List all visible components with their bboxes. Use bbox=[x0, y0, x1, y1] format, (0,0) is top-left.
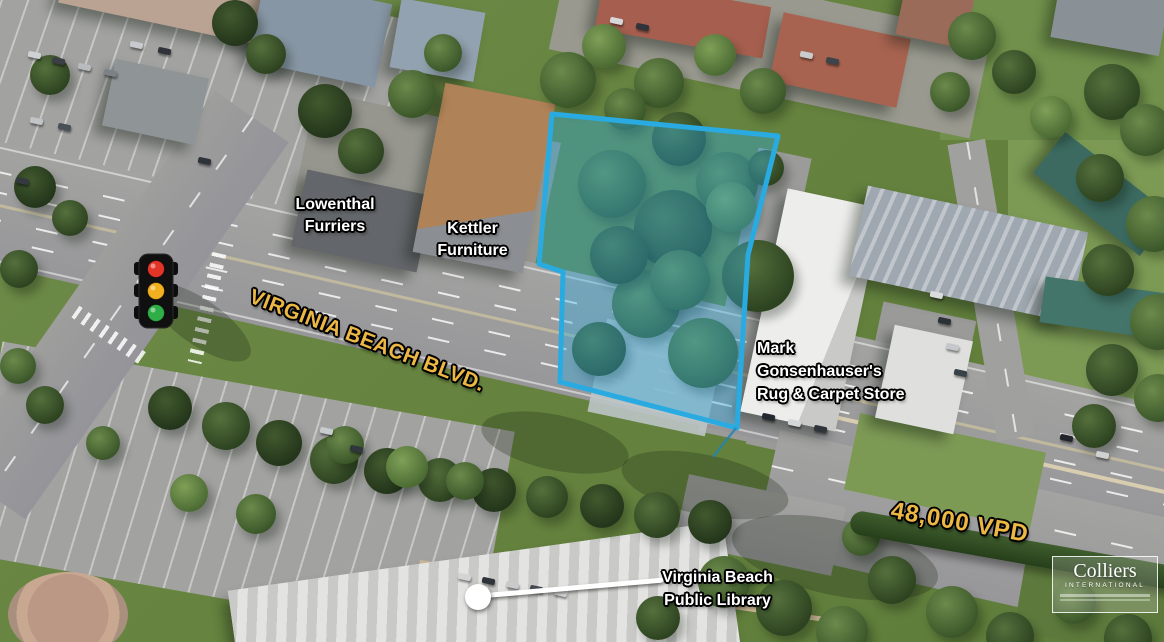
tree bbox=[634, 492, 680, 538]
tree bbox=[688, 500, 732, 544]
label-line: Furniture bbox=[410, 240, 535, 262]
label-line: Public Library bbox=[655, 589, 780, 612]
tree bbox=[202, 402, 250, 450]
tree bbox=[170, 474, 208, 512]
tree bbox=[256, 420, 302, 466]
aerial-map: Lowenthal Furriers Kettler Furniture VIR… bbox=[0, 0, 1164, 642]
tree bbox=[148, 386, 192, 430]
colliers-logo-name: Colliers bbox=[1053, 560, 1157, 582]
library-callout-dot bbox=[465, 584, 491, 610]
tree bbox=[604, 88, 646, 130]
label-line: Mark bbox=[757, 337, 905, 360]
traffic-light-icon bbox=[134, 252, 178, 332]
tree bbox=[388, 70, 436, 118]
colliers-logo: Colliers INTERNATIONAL bbox=[1052, 556, 1158, 613]
tree bbox=[930, 72, 970, 112]
tree bbox=[948, 12, 996, 60]
tree bbox=[1082, 244, 1134, 296]
tree bbox=[446, 462, 484, 500]
tree bbox=[748, 150, 784, 186]
tree bbox=[694, 34, 736, 76]
tree bbox=[1120, 104, 1164, 156]
label-kettler-furniture: Kettler Furniture bbox=[410, 218, 535, 262]
label-line: Kettler bbox=[410, 218, 535, 240]
tree bbox=[572, 322, 626, 376]
tree bbox=[590, 226, 648, 284]
tree bbox=[298, 84, 352, 138]
tree bbox=[0, 250, 38, 288]
tree bbox=[668, 318, 738, 388]
tree bbox=[652, 112, 706, 166]
label-line: Furriers bbox=[275, 216, 395, 238]
logo-fine-print bbox=[1060, 599, 1149, 601]
tree bbox=[26, 386, 64, 424]
tree bbox=[1072, 404, 1116, 448]
tree bbox=[86, 426, 120, 460]
label-line: Gonsenhauser's bbox=[757, 360, 905, 383]
tree bbox=[650, 250, 710, 310]
tree bbox=[582, 24, 626, 68]
tree bbox=[526, 476, 568, 518]
tree bbox=[338, 128, 384, 174]
label-line: Rug & Carpet Store bbox=[757, 383, 905, 406]
tree bbox=[14, 166, 56, 208]
tree bbox=[386, 446, 428, 488]
colliers-logo-subtitle: INTERNATIONAL bbox=[1053, 582, 1157, 590]
tree bbox=[52, 200, 88, 236]
tree bbox=[236, 494, 276, 534]
tree bbox=[1086, 344, 1138, 396]
tree bbox=[424, 34, 462, 72]
tree bbox=[578, 150, 646, 218]
car bbox=[930, 291, 944, 300]
tree bbox=[580, 484, 624, 528]
tree bbox=[706, 182, 756, 232]
label-line: Virginia Beach bbox=[655, 566, 780, 589]
label-gonsenhauser: Mark Gonsenhauser's Rug & Carpet Store bbox=[757, 337, 905, 406]
label-lowenthal-furriers: Lowenthal Furriers bbox=[275, 194, 395, 238]
tree bbox=[1030, 96, 1072, 138]
tree bbox=[868, 556, 916, 604]
tree bbox=[722, 240, 794, 312]
label-line: Lowenthal bbox=[275, 194, 395, 216]
tree bbox=[740, 68, 786, 114]
tree bbox=[0, 348, 36, 384]
logo-fine-print bbox=[1060, 594, 1149, 597]
tree bbox=[926, 586, 978, 638]
tree bbox=[992, 50, 1036, 94]
tree bbox=[1076, 154, 1124, 202]
tree bbox=[246, 34, 286, 74]
label-library: Virginia Beach Public Library bbox=[655, 566, 780, 612]
